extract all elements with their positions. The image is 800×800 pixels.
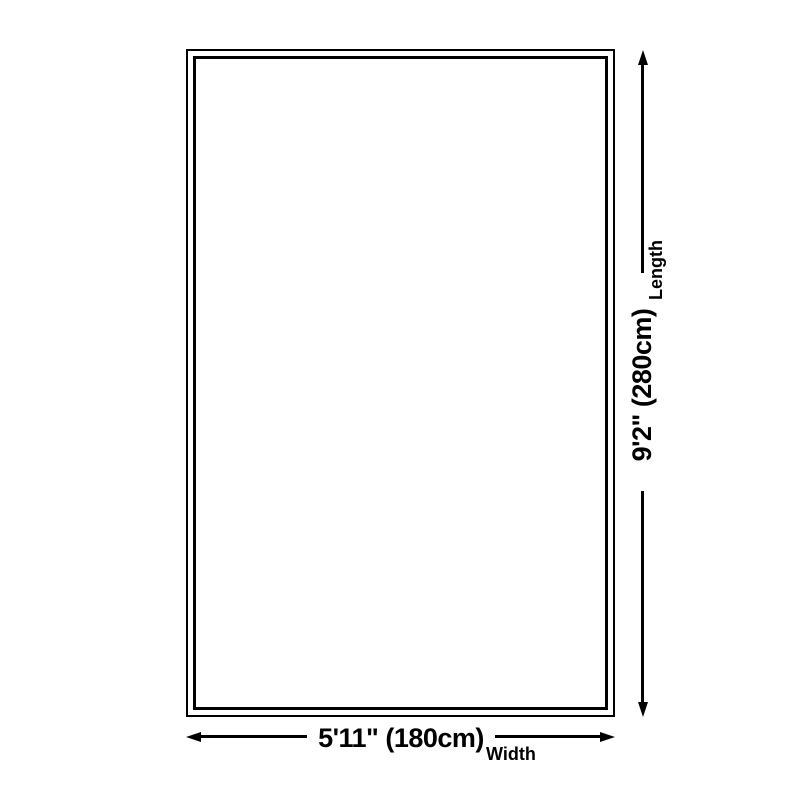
- length-dimension-line-bottom: [641, 491, 644, 703]
- width-dimension-line-right: [495, 735, 601, 738]
- width-label: Width: [486, 745, 536, 763]
- rug-outline: [186, 49, 615, 717]
- width-value-text: 5'11" (180cm): [307, 723, 495, 753]
- arrow-down-icon: [638, 702, 648, 717]
- length-dimension-line-top: [641, 62, 644, 273]
- arrow-right-icon: [600, 732, 615, 742]
- rug-inner-outline: [193, 56, 608, 710]
- rug-dimension-diagram: Length 9'2" (280cm) 5'11" (180cm) Width: [0, 0, 800, 800]
- width-dimension-line-left: [198, 735, 307, 738]
- length-value-text: 9'2" (280cm): [627, 275, 657, 495]
